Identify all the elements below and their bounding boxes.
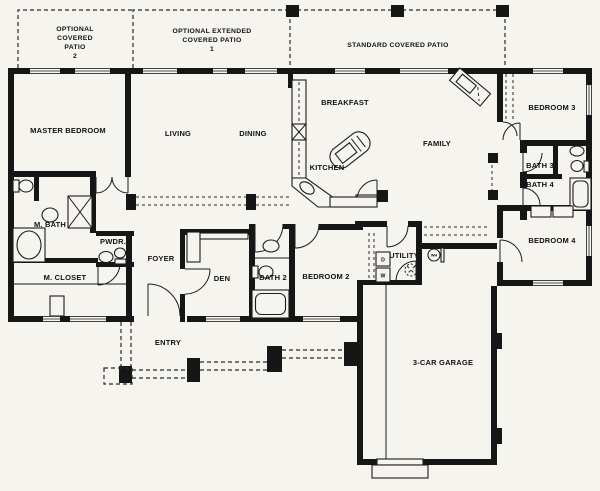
patio2-label-line1: OPTIONAL <box>56 26 94 33</box>
wall-segment <box>125 68 131 177</box>
window <box>30 69 60 73</box>
wall-post <box>246 194 256 210</box>
water-heater-label: WH <box>431 254 438 258</box>
tub-icon <box>252 290 289 318</box>
wall-segment <box>34 177 39 201</box>
shower-icon <box>68 196 92 228</box>
room-label-master-bedroom: MASTER BEDROOM <box>30 126 106 135</box>
wall-segment <box>180 229 185 269</box>
dryer-label: D <box>381 258 385 264</box>
wall-post <box>488 190 498 200</box>
utility-door <box>387 226 408 247</box>
bedroom2-door <box>295 224 319 248</box>
wall-post <box>126 194 136 210</box>
wall-segment <box>520 140 592 146</box>
garage-details <box>372 285 428 478</box>
patio1-label-line2: COVERED PATIO <box>182 37 241 44</box>
water-heater-icon: WH <box>428 248 444 262</box>
window <box>587 85 591 115</box>
patio-pillar <box>496 5 509 17</box>
wall-segment <box>497 205 503 238</box>
wall-segment <box>491 286 497 465</box>
room-label-m-bath: M. BATH <box>34 220 66 229</box>
room-label-dining: DINING <box>239 129 266 138</box>
entry-porch <box>104 322 358 384</box>
standard-patio-label: STANDARD COVERED PATIO <box>347 42 448 49</box>
room-label-bath-3: BATH 3 <box>526 161 554 170</box>
wall-segment <box>289 224 295 322</box>
washer-box: W <box>376 268 390 282</box>
toilet-icon <box>115 248 127 264</box>
room-label-bedroom-3: BEDROOM 3 <box>528 103 575 112</box>
double-door <box>96 177 128 193</box>
toilet-icon <box>13 180 33 192</box>
room-label-garage: 3-CAR GARAGE <box>413 358 473 367</box>
patio2-label-line2: COVERED <box>57 35 93 42</box>
wall-segment <box>520 140 527 153</box>
window <box>245 69 277 73</box>
window <box>143 69 177 73</box>
entry-door <box>148 284 180 316</box>
porch-pillar <box>267 346 282 372</box>
window <box>335 69 365 73</box>
room-label-kitchen: KITCHEN <box>310 163 345 172</box>
room-label-entry: ENTRY <box>155 338 181 347</box>
wall-segment <box>357 285 363 465</box>
doors <box>96 122 542 316</box>
window <box>43 317 60 321</box>
patio1-label-line3: 1 <box>210 46 214 53</box>
wall-segment <box>527 174 562 179</box>
room-label-bedroom-4: BEDROOM 4 <box>528 236 576 245</box>
porch-pillar <box>344 342 358 366</box>
bath4-door <box>523 188 540 205</box>
tub-icon <box>570 178 591 210</box>
window <box>533 69 563 73</box>
bedroom3-door <box>503 123 520 140</box>
wall-segment <box>8 171 96 177</box>
patio-pillar <box>391 5 404 17</box>
sink-icon <box>99 252 113 263</box>
floor-plan-svg: D W WH OPTIONAL COVERED PATIO 2 OPTIONAL… <box>0 0 600 491</box>
room-label-breakfast: BREAKFAST <box>321 98 369 107</box>
wall-post <box>377 190 388 202</box>
tub-icon <box>13 228 45 262</box>
wall-segment <box>126 231 132 322</box>
window <box>213 69 227 73</box>
room-label-living: LIVING <box>165 129 191 138</box>
wall-segment <box>422 243 497 249</box>
wall-notch <box>497 428 502 444</box>
bedroom4-door <box>500 240 522 262</box>
patio1-label-line1: OPTIONAL EXTENDED <box>173 28 252 35</box>
porch-pillar <box>187 358 200 382</box>
room-label-den: DEN <box>214 274 230 283</box>
wall-segment <box>497 262 503 286</box>
washer-label: W <box>381 274 386 280</box>
wall-segment <box>497 68 503 122</box>
window <box>206 317 240 321</box>
den-closet <box>187 232 248 262</box>
patio-pillar <box>286 5 299 17</box>
wall-post <box>488 153 498 163</box>
window <box>587 226 591 256</box>
patio2-label-line4: 2 <box>73 53 77 60</box>
sink-icon <box>570 146 584 156</box>
floor-plan-canvas: D W WH OPTIONAL COVERED PATIO 2 OPTIONAL… <box>0 0 600 491</box>
wall-notch <box>497 333 502 349</box>
patio2-label-line3: PATIO <box>64 44 85 51</box>
room-label-utility: UTILITY <box>389 251 419 260</box>
window <box>400 69 448 73</box>
window <box>533 281 563 285</box>
room-label-m-closet: M. CLOSET <box>44 273 87 282</box>
toilet-icon <box>571 161 589 173</box>
wall-segment <box>355 221 387 227</box>
garage-door <box>372 459 428 478</box>
furnace-icon <box>405 264 417 276</box>
sink-icon <box>252 240 289 258</box>
window <box>70 317 106 321</box>
window <box>75 69 110 73</box>
room-label-family: FAMILY <box>423 139 451 148</box>
room-label-bath-2: BATH 2 <box>259 273 287 282</box>
wall-segment <box>180 294 185 322</box>
room-label-bedroom-2: BEDROOM 2 <box>302 272 349 281</box>
dryer-box: D <box>376 252 390 266</box>
room-label-bath-4: BATH 4 <box>526 180 554 189</box>
standard-patio-outline <box>290 10 505 68</box>
closet-rod <box>13 284 126 316</box>
den-door <box>185 269 210 294</box>
room-label-foyer: FOYER <box>148 254 175 263</box>
room-label-pwdr: PWDR. <box>100 237 126 246</box>
window <box>303 317 340 321</box>
